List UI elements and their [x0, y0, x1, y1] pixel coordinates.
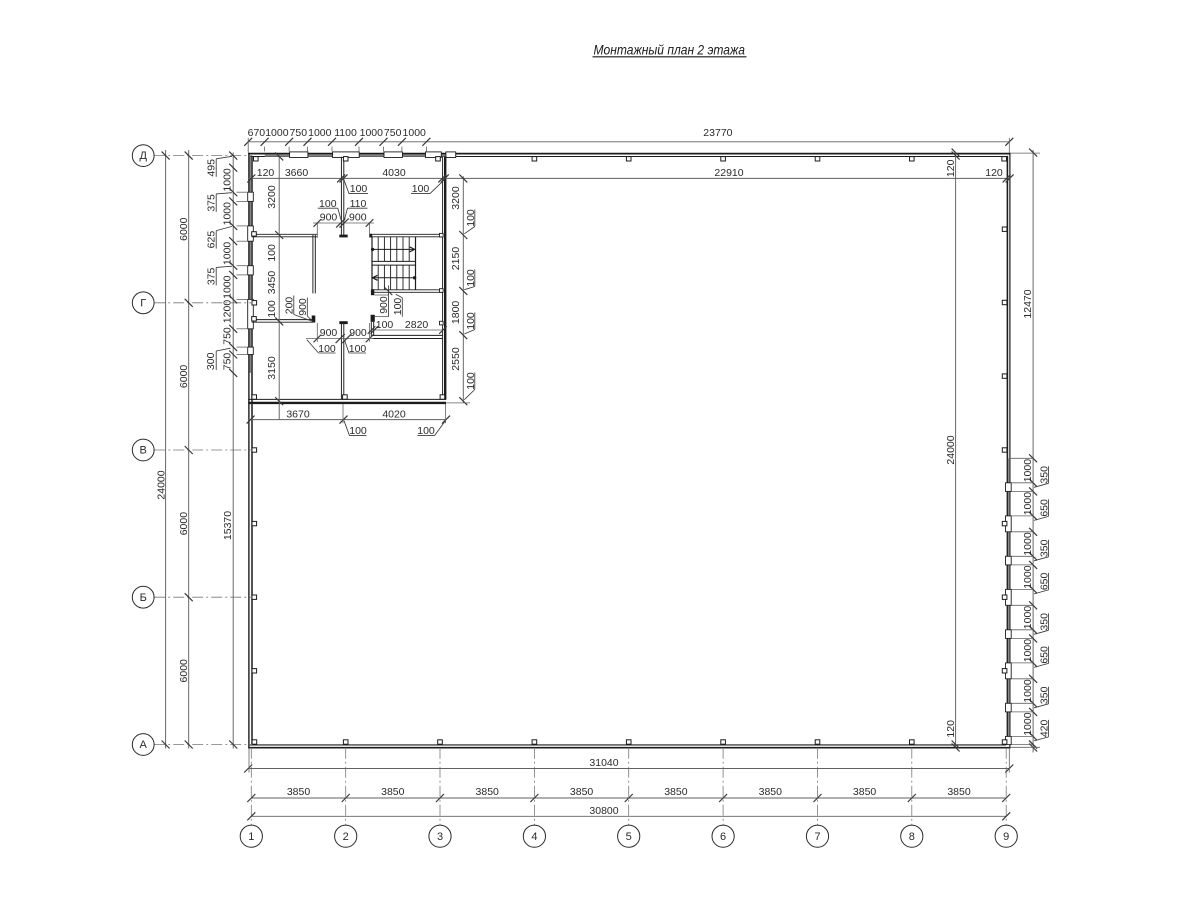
svg-text:3850: 3850: [476, 786, 500, 798]
svg-text:15370: 15370: [222, 511, 234, 540]
svg-text:100: 100: [266, 300, 278, 318]
svg-text:6: 6: [720, 831, 726, 843]
svg-text:750: 750: [290, 127, 308, 139]
svg-text:Монтажный план 2 этажа: Монтажный план 2 этажа: [594, 42, 746, 58]
svg-text:3850: 3850: [664, 786, 688, 798]
svg-text:1000: 1000: [222, 242, 234, 266]
svg-text:1000: 1000: [222, 202, 234, 226]
svg-text:9: 9: [1003, 831, 1009, 843]
svg-text:120: 120: [257, 167, 275, 179]
svg-text:1000: 1000: [403, 127, 427, 139]
svg-text:2150: 2150: [450, 247, 462, 271]
svg-text:1000: 1000: [265, 127, 289, 139]
svg-text:2: 2: [343, 831, 349, 843]
svg-text:31040: 31040: [589, 757, 618, 769]
svg-text:3850: 3850: [287, 786, 311, 798]
svg-text:3850: 3850: [947, 786, 971, 798]
svg-text:3200: 3200: [450, 186, 462, 210]
svg-text:5: 5: [626, 831, 632, 843]
svg-text:2550: 2550: [450, 347, 462, 371]
svg-text:А: А: [140, 739, 148, 751]
svg-text:3200: 3200: [266, 185, 278, 209]
svg-text:24000: 24000: [155, 470, 167, 499]
svg-text:3150: 3150: [266, 356, 278, 380]
svg-text:1000: 1000: [222, 275, 234, 299]
svg-text:Б: Б: [140, 592, 147, 604]
svg-text:4: 4: [531, 831, 537, 843]
svg-text:100: 100: [349, 425, 367, 437]
svg-text:100: 100: [417, 425, 435, 437]
svg-text:1000: 1000: [1022, 639, 1034, 663]
svg-text:1000: 1000: [1022, 679, 1034, 703]
svg-text:12470: 12470: [1022, 289, 1034, 318]
svg-text:900: 900: [320, 212, 338, 224]
svg-text:1000: 1000: [1022, 459, 1034, 483]
svg-text:1000: 1000: [360, 127, 384, 139]
svg-text:750: 750: [384, 127, 402, 139]
svg-text:3850: 3850: [570, 786, 594, 798]
svg-text:3660: 3660: [285, 167, 309, 179]
svg-text:6000: 6000: [178, 365, 190, 389]
svg-text:300: 300: [205, 352, 217, 370]
svg-text:6000: 6000: [178, 217, 190, 241]
svg-text:670: 670: [248, 127, 266, 139]
svg-text:1000: 1000: [308, 127, 332, 139]
svg-text:23770: 23770: [703, 127, 732, 139]
svg-text:1200: 1200: [222, 300, 234, 324]
svg-text:30800: 30800: [589, 805, 618, 817]
svg-text:3850: 3850: [759, 786, 783, 798]
svg-text:1100: 1100: [334, 127, 357, 139]
svg-text:3670: 3670: [286, 409, 310, 421]
svg-text:900: 900: [320, 327, 338, 339]
svg-text:24000: 24000: [945, 435, 957, 464]
svg-text:7: 7: [814, 831, 820, 843]
svg-text:1000: 1000: [1022, 532, 1034, 556]
svg-text:В: В: [140, 445, 147, 457]
svg-text:4030: 4030: [382, 167, 406, 179]
svg-text:Г: Г: [140, 297, 146, 309]
svg-text:1000: 1000: [1022, 606, 1034, 630]
svg-text:900: 900: [349, 212, 367, 224]
svg-text:3850: 3850: [381, 786, 405, 798]
svg-text:3850: 3850: [853, 786, 877, 798]
svg-text:Д: Д: [139, 150, 147, 162]
svg-text:3450: 3450: [266, 271, 278, 295]
svg-text:900: 900: [378, 296, 390, 314]
svg-text:100: 100: [266, 244, 278, 262]
svg-text:750: 750: [222, 327, 234, 345]
svg-text:900: 900: [349, 327, 367, 339]
svg-text:120: 120: [945, 159, 957, 177]
svg-text:6000: 6000: [178, 659, 190, 683]
svg-text:4020: 4020: [382, 409, 406, 421]
svg-text:100: 100: [376, 319, 394, 331]
svg-text:6000: 6000: [178, 512, 190, 536]
svg-text:1000: 1000: [1022, 712, 1034, 736]
svg-text:1800: 1800: [450, 301, 462, 325]
svg-text:2820: 2820: [405, 319, 429, 331]
svg-text:100: 100: [392, 298, 404, 316]
svg-text:120: 120: [985, 167, 1003, 179]
svg-text:3: 3: [437, 831, 443, 843]
svg-text:1000: 1000: [1022, 492, 1034, 516]
svg-text:1: 1: [248, 831, 254, 843]
svg-text:22910: 22910: [714, 167, 743, 179]
svg-text:1000: 1000: [222, 168, 234, 192]
svg-text:120: 120: [945, 720, 957, 738]
svg-text:750: 750: [222, 353, 234, 371]
svg-text:8: 8: [909, 831, 915, 843]
svg-text:1000: 1000: [1022, 565, 1034, 589]
